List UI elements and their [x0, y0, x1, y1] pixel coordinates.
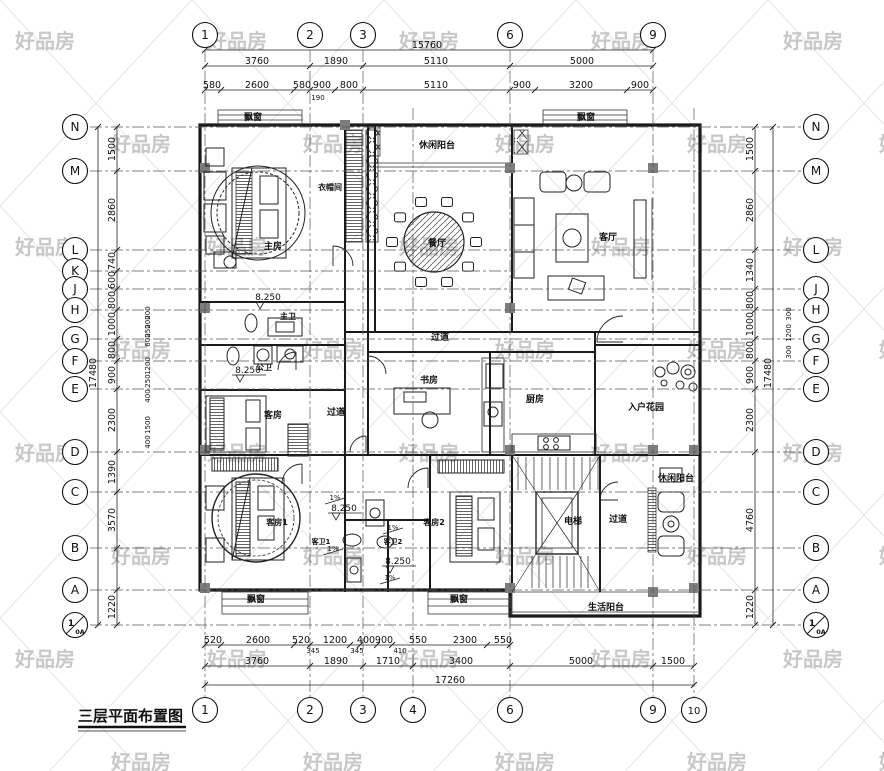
watermark-text: 好品房 — [494, 750, 555, 771]
dim-label: 250 — [144, 374, 152, 387]
svg-text:2: 2 — [306, 703, 314, 717]
grid-bubble: D — [63, 440, 88, 465]
grid-bubble: 3 — [351, 698, 376, 723]
svg-text:8.250: 8.250 — [255, 293, 281, 303]
grid-bubble: L — [804, 238, 829, 263]
svg-text:H: H — [811, 303, 820, 317]
room-label: 休闲阳台 — [657, 472, 694, 484]
room-label: 生活阳台 — [588, 601, 624, 613]
svg-text:J: J — [72, 282, 77, 296]
svg-text:C: C — [812, 485, 820, 499]
dim-label: 17260 — [435, 675, 465, 686]
room-label: 过道 — [327, 406, 345, 418]
dim-label: 5000 — [570, 56, 594, 67]
svg-text:0A: 0A — [816, 628, 826, 636]
svg-text:4: 4 — [409, 703, 417, 717]
dim-label: 5110 — [424, 56, 448, 67]
svg-text:2: 2 — [306, 28, 314, 42]
svg-text:1: 1 — [201, 28, 209, 42]
title-block: 三层平面布置图 — [78, 707, 186, 731]
svg-text:F: F — [72, 354, 79, 368]
dim-label: 1340 — [745, 258, 756, 282]
dim-label: 3760 — [245, 56, 269, 67]
svg-text:6: 6 — [506, 28, 514, 42]
dim-label: 400 — [144, 435, 152, 448]
dim-label: 1500 — [107, 137, 118, 161]
grid-bubble: E — [63, 377, 88, 402]
grid-bubble: C — [63, 480, 88, 505]
dim-label: 345 — [350, 647, 363, 655]
dim-label: 1200 — [323, 635, 347, 646]
dim-label: 800 — [745, 291, 756, 309]
dim-label: 300 — [785, 307, 793, 320]
grid-bubble: 3 — [351, 23, 376, 48]
drawing-title: 三层平面布置图 — [78, 707, 183, 725]
column — [340, 120, 350, 130]
grid-bubble: D — [804, 440, 829, 465]
grid-bubble: E — [804, 377, 829, 402]
watermark-text: 好品房 — [686, 132, 747, 156]
svg-text:K: K — [71, 264, 80, 278]
dim-label: 800 — [340, 80, 358, 91]
room-label: 餐厅 — [427, 237, 446, 249]
room-label: 衣帽间 — [318, 182, 342, 192]
dim-label: 5110 — [424, 80, 448, 91]
svg-text:A: A — [71, 583, 80, 597]
svg-text:0A: 0A — [75, 628, 85, 636]
dim-label: 300 — [785, 345, 793, 358]
grid-bubble: 6 — [498, 23, 523, 48]
watermark-text: 好品房 — [590, 647, 651, 671]
dim-label: 900 — [107, 366, 118, 384]
svg-text:1: 1 — [68, 619, 74, 629]
grid-bubble: H — [804, 298, 829, 323]
dim-label: 3200 — [569, 80, 593, 91]
svg-text:E: E — [71, 382, 79, 396]
dim-label: 2300 — [107, 408, 118, 432]
grid-bubble: F — [63, 349, 88, 374]
dim-label: 900 — [631, 80, 649, 91]
dim-label: 190 — [311, 94, 324, 102]
dim-label: 1500 — [661, 656, 685, 667]
svg-text:D: D — [70, 445, 79, 459]
room-label: 飘窗 — [450, 593, 468, 605]
dim-label: 550 — [494, 635, 512, 646]
dim-label: 1890 — [324, 56, 348, 67]
watermark-text: 好品房 — [14, 647, 75, 671]
dim-label: 800 — [107, 291, 118, 309]
dim-label: 550 — [409, 635, 427, 646]
dim-label: 800 — [107, 341, 118, 359]
watermark-text: 好品房 — [14, 29, 75, 53]
svg-text:6: 6 — [506, 703, 514, 717]
dim-label: 2860 — [745, 198, 756, 222]
grid-bubble: M — [804, 159, 829, 184]
grid-bubble: 10A — [804, 613, 829, 638]
svg-text:M: M — [70, 164, 80, 178]
grid-bubble: B — [804, 536, 829, 561]
grid-bubble: 4 — [401, 698, 426, 723]
room-label: 书房 — [420, 374, 438, 386]
svg-text:C: C — [71, 485, 79, 499]
room-label: 客房2 — [422, 517, 445, 527]
room-label: 电梯 — [564, 515, 582, 527]
dim-label: 1500 — [144, 416, 152, 434]
svg-text:9: 9 — [649, 28, 657, 42]
dim-label: 2600 — [246, 635, 270, 646]
svg-text:J: J — [813, 282, 818, 296]
dim-label: 2600 — [245, 80, 269, 91]
dim-label: 3760 — [245, 656, 269, 667]
grid-bubble: F — [804, 349, 829, 374]
svg-text:8.250: 8.250 — [385, 557, 411, 567]
svg-text:9: 9 — [649, 703, 657, 717]
balcony-planter — [648, 488, 656, 552]
svg-text:A: A — [812, 583, 821, 597]
dim-label: 520 — [292, 635, 310, 646]
grid-bubble: A — [63, 578, 88, 603]
dim-label: 900 — [313, 80, 331, 91]
watermark-text: 好品房 — [110, 544, 171, 568]
svg-text:F: F — [813, 354, 820, 368]
dim-label: 17480 — [88, 358, 99, 388]
grid-bubble: 9 — [641, 23, 666, 48]
dim-label: 2860 — [107, 198, 118, 222]
grid-bubble: H — [63, 298, 88, 323]
watermark-text: 好品房 — [686, 544, 747, 568]
dim-label: 5000 — [569, 656, 593, 667]
svg-text:M: M — [811, 164, 821, 178]
watermark-text: 好品房 — [878, 132, 884, 156]
room-label: 客房1 — [265, 517, 288, 527]
grid-bubble: 2 — [298, 698, 323, 723]
grid-bubble: B — [63, 536, 88, 561]
grid-bubble: M — [63, 159, 88, 184]
grid-bubble: 1 — [193, 698, 218, 723]
grid-bubble: A — [804, 578, 829, 603]
dim-label: 1200 — [144, 357, 152, 375]
watermark-text: 好品房 — [878, 750, 884, 771]
svg-text:B: B — [812, 541, 820, 555]
dim-label: 1220 — [745, 595, 756, 619]
dim-label: 400 — [357, 635, 375, 646]
watermark-text: 好品房 — [110, 750, 171, 771]
room-label: 飘窗 — [247, 593, 265, 605]
grid-bubble: 10A — [63, 613, 88, 638]
dim-label: 410 — [393, 647, 406, 655]
grid-bubble: G — [804, 327, 829, 352]
watermark-text: 好品房 — [878, 544, 884, 568]
grid-bubble: 6 — [498, 698, 523, 723]
room-label: 飘窗 — [577, 111, 595, 123]
dim-label: 580 — [203, 80, 221, 91]
wardrobe-closet — [346, 130, 362, 242]
dim-label: 3400 — [449, 656, 473, 667]
svg-text:3: 3 — [359, 28, 367, 42]
room-label: 过道 — [609, 513, 627, 525]
dim-label: 1000 — [745, 312, 756, 336]
room-label: 客房 — [263, 409, 282, 421]
svg-text:B: B — [71, 541, 79, 555]
room-label: 客卫2 — [383, 537, 403, 546]
dim-label: 1500 — [745, 137, 756, 161]
room-label: 主卫 — [280, 311, 296, 321]
grid-bubble: G — [63, 327, 88, 352]
svg-text:L: L — [813, 243, 820, 257]
svg-text:1: 1 — [201, 703, 209, 717]
watermark-text: 好品房 — [878, 338, 884, 362]
dim-label: 1220 — [107, 595, 118, 619]
dim-label: 800 — [745, 341, 756, 359]
svg-text:N: N — [71, 120, 80, 134]
svg-text:8.250: 8.250 — [331, 504, 357, 514]
svg-text:G: G — [70, 332, 79, 346]
room-label: 主房 — [264, 240, 282, 252]
room-label: 过道 — [431, 331, 449, 343]
dim-label: 1890 — [324, 656, 348, 667]
dim-label: 1200 — [785, 324, 793, 342]
svg-text:10: 10 — [688, 706, 701, 717]
dim-label: 900 — [513, 80, 531, 91]
watermark-text: 好品房 — [302, 338, 363, 362]
dim-label: 3570 — [107, 508, 118, 532]
dim-label: 17480 — [763, 358, 774, 388]
dim-label: 345 — [306, 647, 319, 655]
grid-bubble: 10 — [682, 698, 707, 723]
room-label: 飘窗 — [244, 111, 262, 123]
dim-label: 1710 — [376, 656, 400, 667]
watermark-text: 好品房 — [302, 750, 363, 771]
watermark-text: 好品房 — [686, 750, 747, 771]
dim-label: 400 — [144, 389, 152, 402]
dim-label: 580 — [293, 80, 311, 91]
dim-label: 600 — [144, 333, 152, 346]
svg-text:N: N — [812, 120, 821, 134]
dim-label: 1390 — [107, 460, 118, 484]
watermark-text: 好品房 — [782, 647, 843, 671]
dim-label: 900 — [375, 635, 393, 646]
svg-text:E: E — [812, 382, 820, 396]
watermark-text: 好品房 — [110, 132, 171, 156]
room-label: 入户花园 — [627, 401, 664, 413]
floorplan-svg: 好品房好品房好品房好品房好品房好品房好品房好品房好品房好品房好品房好品房好品房好… — [0, 0, 884, 771]
grid-bubble: 9 — [641, 698, 666, 723]
dim-label: 900 — [745, 366, 756, 384]
grid-bubble: N — [804, 115, 829, 140]
dim-label: 520 — [204, 635, 222, 646]
dim-label: 1000 — [107, 312, 118, 336]
dim-label: 740 — [107, 252, 118, 270]
dim-label: 4760 — [745, 508, 756, 532]
grid-bubble: 1 — [193, 23, 218, 48]
grid-bubble: C — [804, 480, 829, 505]
room-label: 休闲阳台 — [418, 139, 455, 151]
dim-label: 600 — [107, 271, 118, 289]
svg-text:G: G — [811, 332, 820, 346]
dim-label: 2300 — [745, 408, 756, 432]
svg-text:3: 3 — [359, 703, 367, 717]
svg-text:1: 1 — [809, 619, 815, 629]
watermark-text: 好品房 — [686, 338, 747, 362]
svg-text:D: D — [811, 445, 820, 459]
grid-bubble: 2 — [298, 23, 323, 48]
dim-label: 15760 — [412, 40, 442, 51]
room-label: 客厅 — [598, 231, 617, 243]
svg-text:H: H — [70, 303, 79, 317]
grid-bubble: N — [63, 115, 88, 140]
floorplan-page: 好品房好品房好品房好品房好品房好品房好品房好品房好品房好品房好品房好品房好品房好… — [0, 0, 884, 771]
watermark-text: 好品房 — [782, 29, 843, 53]
svg-text:L: L — [72, 243, 79, 257]
svg-text:8.250: 8.250 — [235, 366, 261, 376]
room-label: 厨房 — [526, 393, 544, 405]
dim-label: 2300 — [453, 635, 477, 646]
